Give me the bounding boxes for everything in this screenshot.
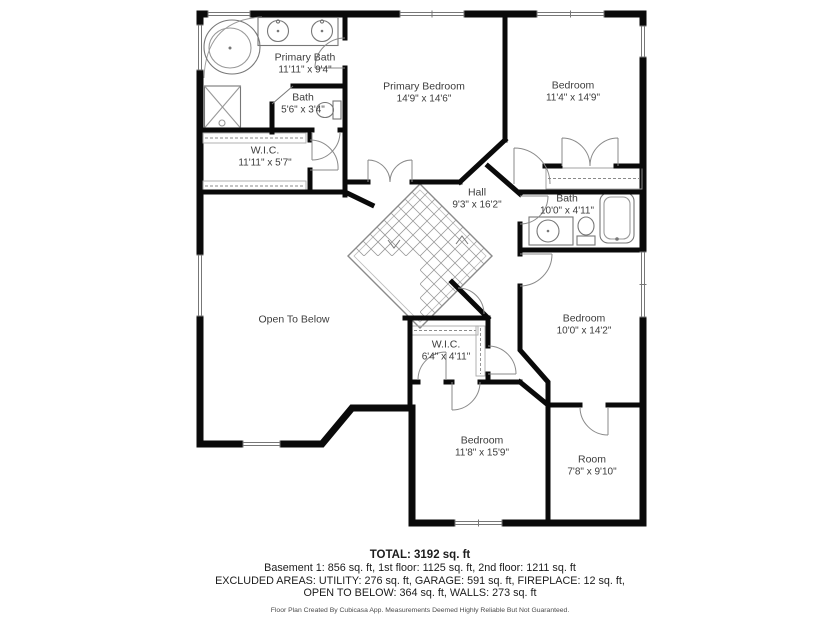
disclaimer-text: Floor Plan Created By Cubicasa App. Meas… bbox=[0, 607, 840, 614]
floor-plan-drawing bbox=[0, 0, 840, 630]
floor-plan-page: Primary Bath 11'11" x 9'4" Bath 5'6" x 3… bbox=[0, 0, 840, 630]
total-area-text: TOTAL: 3192 sq. ft bbox=[0, 549, 840, 562]
excluded-areas-text-1: EXCLUDED AREAS: UTILITY: 276 sq. ft, GAR… bbox=[0, 575, 840, 588]
area-summary: TOTAL: 3192 sq. ft Basement 1: 856 sq. f… bbox=[0, 549, 840, 614]
floor-areas-text: Basement 1: 856 sq. ft, 1st floor: 1125 … bbox=[0, 562, 840, 575]
excluded-areas-text-2: OPEN TO BELOW: 364 sq. ft, WALLS: 273 sq… bbox=[0, 587, 840, 600]
